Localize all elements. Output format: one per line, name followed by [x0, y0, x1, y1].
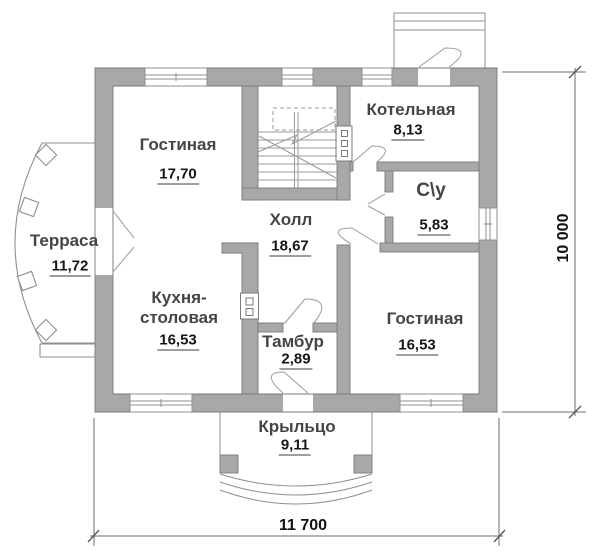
window-top-boiler [362, 68, 392, 86]
window-bottom-living [400, 394, 463, 412]
dimension-height: 10 000 [555, 214, 573, 263]
room-area-terrace: 11,72 [50, 258, 91, 277]
room-area-wc: 5,83 [417, 217, 450, 236]
room-label-terrace: Терраса [30, 231, 98, 251]
room-area-boiler: 8,13 [391, 122, 424, 141]
room-label-living-right: Гостиная [387, 309, 464, 329]
boiler-entry-stoop [394, 13, 485, 68]
room-label-vestibule: Тамбур [262, 332, 324, 352]
window-bottom-kitchen [130, 394, 192, 412]
window-top-stair [282, 68, 313, 86]
room-label-kitchen: Кухня- столовая [140, 288, 218, 328]
vent-shaft-stair-wall [336, 126, 352, 161]
window-top-living [145, 68, 207, 86]
door-terrace [113, 211, 134, 272]
porch-posts [220, 455, 372, 473]
door-wc [368, 194, 385, 215]
door-vestibule-hall [284, 299, 322, 324]
room-area-porch: 9,11 [279, 437, 311, 456]
window-right-wc [479, 208, 497, 240]
room-area-vestibule: 2,89 [279, 351, 312, 370]
door-entrance [271, 372, 308, 393]
room-label-hall: Холл [270, 210, 313, 230]
staircase [258, 108, 337, 188]
door-boiler-interior [353, 146, 385, 162]
door-living-right [338, 228, 378, 244]
room-area-kitchen: 16,53 [157, 332, 199, 351]
room-label-wc: С\у [416, 180, 446, 202]
room-area-living-right: 16,53 [396, 337, 438, 356]
vent-shaft-kitchen-wall [241, 293, 259, 319]
room-area-living-top: 17,70 [157, 166, 199, 185]
floor-plan: Гостиная 17,70 Терраса 11,72 Котельная 8… [0, 0, 600, 552]
dimension-width: 11 700 [279, 517, 327, 535]
room-label-living-top: Гостиная [140, 135, 217, 155]
room-area-hall: 18,67 [269, 238, 311, 257]
room-label-kitchen-line1: Кухня- [140, 288, 218, 308]
room-label-kitchen-line2: столовая [140, 308, 218, 328]
room-label-boiler: Котельная [366, 100, 455, 120]
room-label-porch: Крыльцо [258, 417, 335, 437]
